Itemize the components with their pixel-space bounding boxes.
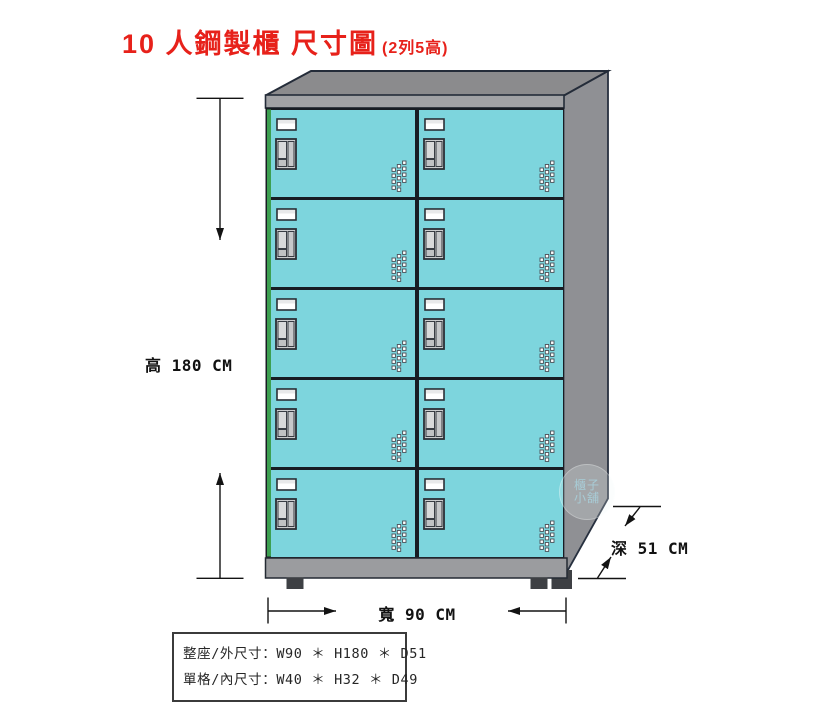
spec-outer-size: 整座/外尺寸：W90 ＊ H180 ＊ D51 xyxy=(183,641,405,667)
locker-door xyxy=(271,290,415,377)
locker-door xyxy=(419,110,563,197)
diagram-canvas: 櫃子 小舖 10 人鋼製櫃 尺寸圖(2列5高) 高 180 CM 寬 90 CM… xyxy=(0,0,827,720)
watermark-text: 小舖 xyxy=(560,492,614,505)
cabinet-top-rail xyxy=(266,95,565,108)
locker-door xyxy=(271,380,415,467)
locker-door xyxy=(419,290,563,377)
page-title-sub: (2列5高) xyxy=(382,40,448,57)
watermark-badge: 櫃子 小舖 xyxy=(559,464,615,520)
locker-door xyxy=(419,200,563,287)
locker-door xyxy=(419,380,563,467)
height-dimension-arrows xyxy=(197,98,244,578)
height-dimension-label: 高 180 CM xyxy=(145,352,232,376)
cabinet-foot xyxy=(287,578,304,590)
locker-door xyxy=(419,470,563,557)
page-title-main: 10 人鋼製櫃 尺寸圖 xyxy=(122,29,378,59)
locker-door xyxy=(271,470,415,557)
page-title: 10 人鋼製櫃 尺寸圖(2列5高) xyxy=(122,22,449,61)
cabinet-top-surface xyxy=(266,71,609,96)
spec-inner-size: 單格/內尺寸：W40 ＊ H32 ＊ D49 xyxy=(183,667,405,693)
width-dimension-label: 寬 90 CM xyxy=(362,601,472,625)
cabinet-left-edge xyxy=(267,110,271,557)
locker-door xyxy=(271,200,415,287)
spec-box: 整座/外尺寸：W90 ＊ H180 ＊ D51 單格/內尺寸：W40 ＊ H32… xyxy=(172,632,407,702)
depth-dimension-label: 深 51 CM xyxy=(611,535,688,559)
locker-door xyxy=(271,110,415,197)
cabinet-foot xyxy=(531,578,548,590)
cabinet-base xyxy=(266,558,568,578)
